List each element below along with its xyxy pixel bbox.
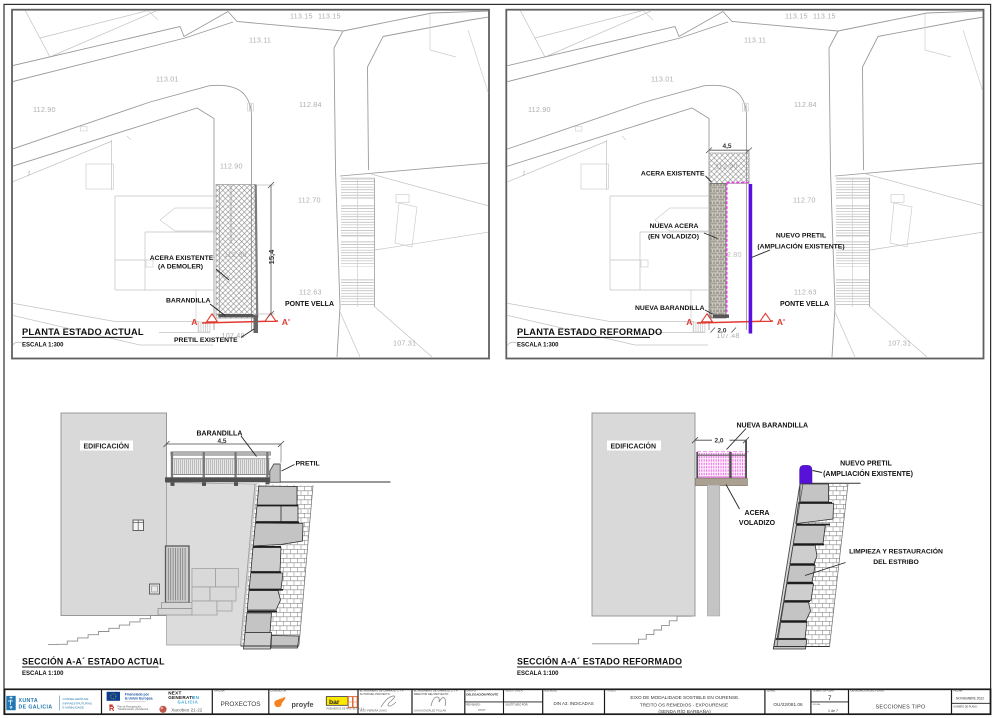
svg-text:PROXECTOS: PROXECTOS [220, 701, 260, 708]
svg-text:DIN A3: INDICADAS: DIN A3: INDICADAS [553, 701, 593, 706]
svg-text:NÚMERO DE PLANO:: NÚMERO DE PLANO: [813, 690, 835, 693]
svg-text:NOVIEMBRE 2022: NOVIEMBRE 2022 [956, 697, 984, 701]
svg-text:ACERA: ACERA [745, 510, 770, 517]
svg-text:TREITO OS REMEDIOS - EXPOURENS: TREITO OS REMEDIOS - EXPOURENSE [640, 702, 728, 707]
svg-text:CONSULTOR: CONSULTOR [270, 689, 286, 693]
svg-text:NUEVA BARANDILLA: NUEVA BARANDILLA [635, 305, 705, 312]
svg-text:REVISADO:: REVISADO: [466, 702, 480, 706]
svg-text:IAGO PEREIRA JUNIO: IAGO PEREIRA JUNIO [360, 709, 387, 713]
svg-text:JUAN GONZÁLEZ POLLÁN: JUAN GONZÁLEZ POLLÁN [414, 709, 447, 713]
svg-text:DEL ESTRIBO: DEL ESTRIBO [873, 559, 919, 566]
svg-text:SECCIÓN A-A´ ESTADO ACTUAL: SECCIÓN A-A´ ESTADO ACTUAL [22, 656, 165, 667]
svg-text:SUSTITUYE A:: SUSTITUYE A: [506, 689, 524, 693]
svg-text:la Unión Europea: la Unión Europea [125, 697, 153, 701]
svg-text:15,4: 15,4 [267, 249, 276, 264]
svg-text:BARANDILLA: BARANDILLA [166, 298, 211, 305]
svg-text:GALICIA: GALICIA [178, 699, 199, 704]
svg-text:BARANDILLA: BARANDILLA [197, 431, 243, 438]
svg-text:AUTOR DEL PROYECTO:: AUTOR DEL PROYECTO: [360, 692, 391, 696]
svg-text:ESCALA 1:300: ESCALA 1:300 [22, 343, 64, 349]
svg-text:2,0: 2,0 [718, 327, 727, 334]
svg-text:Xacobeo 21-22: Xacobeo 21-22 [171, 708, 203, 713]
svg-text:1 de 7: 1 de 7 [828, 709, 838, 713]
svg-text:LIMPIEZA Y RESTAURACIÓN: LIMPIEZA Y RESTAURACIÓN [849, 547, 943, 556]
svg-text:ACERA EXISTENTE: ACERA EXISTENTE [150, 255, 214, 262]
svg-text:DIRECTOR DEL PROYECTO:: DIRECTOR DEL PROYECTO: [414, 692, 449, 696]
svg-text:(SENDA RÍO BARBAÑA): (SENDA RÍO BARBAÑA) [658, 708, 711, 714]
svg-text:OU/22/081.06: OU/22/081.06 [773, 702, 803, 707]
svg-text:EDIFICACIÓN: EDIFICACIÓN [611, 442, 657, 451]
svg-text:SECCIÓN A-A´ ESTADO REFORMADO: SECCIÓN A-A´ ESTADO REFORMADO [517, 656, 682, 667]
svg-text:ACERA EXISTENTE: ACERA EXISTENTE [641, 171, 705, 178]
svg-text:(AMPLIACIÓN EXISTENTE): (AMPLIACIÓN EXISTENTE) [823, 469, 913, 478]
svg-text:(AMPLIACIÓN EXISTENTE): (AMPLIACIÓN EXISTENTE) [757, 242, 844, 251]
svg-text:SUSTITUIDO POR:: SUSTITUIDO POR: [506, 702, 529, 706]
svg-text:bar: bar [329, 699, 340, 706]
svg-text:NUEVA BARANDILLA: NUEVA BARANDILLA [737, 423, 809, 430]
svg-text:Transformación y Resiliencia: Transformación y Resiliencia [118, 708, 149, 711]
svg-text:4,5: 4,5 [722, 143, 731, 150]
svg-text:E MOBILIDADE: E MOBILIDADE [63, 706, 84, 710]
svg-text:2,0: 2,0 [715, 438, 724, 445]
svg-text:VOLADIZO: VOLADIZO [739, 520, 776, 527]
svg-text:07/07: 07/07 [478, 708, 486, 712]
svg-text:ESCALA 1:100: ESCALA 1:100 [22, 671, 64, 677]
svg-text:EIXO DE MODALIDADE SOSTIBLE EN: EIXO DE MODALIDADE SOSTIBLE EN OURENSE. [630, 695, 739, 700]
svg-text:NUEVO PRETIL: NUEVO PRETIL [776, 233, 826, 240]
svg-text:proyfe: proyfe [292, 700, 314, 709]
svg-text:FECHA:: FECHA: [954, 689, 964, 693]
svg-text:TÍTULO:: TÍTULO: [606, 689, 616, 693]
svg-text:PLANTA ESTADO ACTUAL: PLANTA ESTADO ACTUAL [22, 327, 144, 337]
svg-text:(EN VOLADIZO): (EN VOLADIZO) [648, 234, 699, 241]
svg-text:DE GALICIA: DE GALICIA [19, 704, 53, 710]
svg-text:PRETIL EXISTENTE: PRETIL EXISTENTE [174, 337, 238, 344]
svg-text:CLAVE:: CLAVE: [767, 689, 776, 693]
svg-text:PLANTA ESTADO REFORMADO: PLANTA ESTADO REFORMADO [517, 327, 662, 337]
svg-text:SECCIONES TIPO: SECCIONES TIPO [876, 704, 926, 710]
svg-text:NUEVA ACERA: NUEVA ACERA [650, 223, 699, 230]
svg-text:NÚMERO DE PLANO:: NÚMERO DE PLANO: [954, 706, 978, 709]
svg-text:NUEVO PRETIL: NUEVO PRETIL [840, 461, 892, 468]
svg-text:4,5: 4,5 [217, 438, 226, 445]
svg-text:PRETIL: PRETIL [296, 461, 320, 468]
svg-text:DELEGACIÓN PROVTE: DELEGACIÓN PROVTE [466, 692, 498, 697]
svg-text:ESCALA 1:100: ESCALA 1:100 [517, 671, 559, 677]
svg-text:ESCALAS:: ESCALAS: [545, 689, 558, 693]
svg-text:FOLLA:: FOLLA: [813, 703, 821, 706]
svg-text:XUNTA: XUNTA [19, 698, 38, 704]
svg-text:ESCALA 1:300: ESCALA 1:300 [517, 343, 559, 349]
svg-text:OFICINA: OFICINA [214, 689, 225, 693]
svg-text:EDIFICACIÓN: EDIFICACIÓN [84, 442, 130, 451]
svg-text:7: 7 [828, 695, 832, 702]
svg-text:(A DEMOLER): (A DEMOLER) [158, 264, 203, 271]
